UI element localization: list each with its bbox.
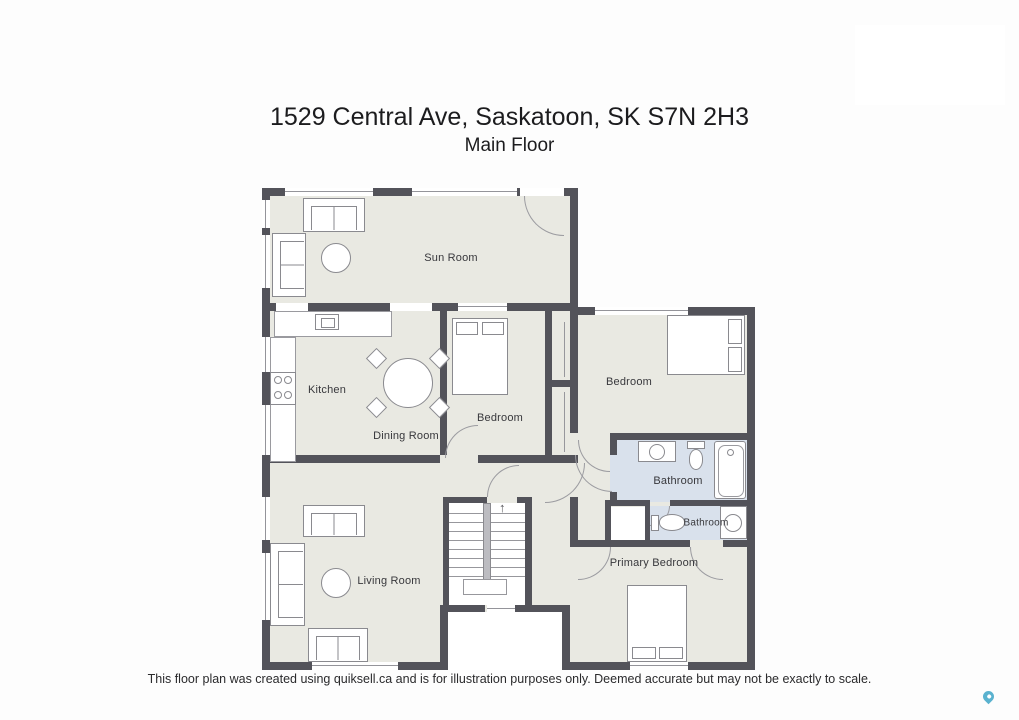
watermark-box	[855, 25, 1005, 105]
wall-vestibule-left	[440, 605, 448, 670]
window-living-bottom	[312, 662, 398, 670]
sofa-icon	[270, 543, 305, 626]
floor-closet	[611, 507, 645, 540]
window-kitchen-left-1	[262, 337, 270, 372]
wall-vestibule-right	[562, 605, 570, 662]
sink-basin	[649, 444, 665, 460]
wall-bedroom-middle-bottom	[478, 455, 578, 463]
window-kitchen-left-2	[262, 405, 270, 455]
wall-right-outer	[747, 307, 755, 670]
loveseat-icon	[308, 628, 368, 662]
toilet-icon	[689, 449, 703, 470]
opening-sunroom-dining	[390, 303, 432, 311]
room-label-bathroom-main: Bathroom	[653, 475, 702, 487]
sofa-icon	[303, 198, 365, 232]
room-label-sun-room: Sun Room	[424, 252, 478, 264]
page-subtitle: Main Floor	[0, 135, 1019, 157]
pillow	[659, 647, 683, 659]
bed-icon	[627, 585, 687, 662]
wall-bedroom-closet	[545, 311, 552, 455]
kitchen-sink-icon	[315, 314, 339, 330]
wall-bedroom-right-bottom	[610, 433, 755, 440]
pillow	[632, 647, 656, 659]
room-label-living-room: Living Room	[357, 575, 420, 587]
room-label-dining-room: Dining Room	[373, 430, 439, 442]
floor-entry-vestibule	[448, 612, 562, 670]
window-living-left-2	[262, 553, 270, 620]
room-label-kitchen: Kitchen	[308, 384, 346, 396]
window-bedroom-middle-top	[458, 303, 507, 311]
wall-sunroom-right	[570, 188, 578, 433]
window-primary-bottom	[630, 662, 688, 670]
room-label-primary-bedroom: Primary Bedroom	[610, 557, 699, 569]
bathroom-vanity-icon	[638, 441, 676, 462]
window-sunroom-left-1	[262, 200, 270, 228]
toilet-tank	[651, 515, 659, 531]
toilet-tank	[687, 441, 705, 449]
burner	[284, 391, 292, 399]
pillow	[482, 322, 504, 335]
sofa-seat	[311, 206, 357, 230]
wall-dining-bedroom	[440, 311, 447, 455]
pillow	[728, 319, 742, 344]
dining-table-icon	[383, 358, 433, 408]
sofa-seat	[280, 241, 304, 289]
bathtub-icon	[714, 441, 746, 499]
closet-rod-lower	[564, 392, 565, 452]
wall-corridor-right	[570, 497, 578, 547]
window-bedroom-right-top	[595, 307, 688, 315]
tub-drain	[727, 449, 734, 456]
wall-stairs-right	[525, 497, 532, 605]
staircase: ↑	[449, 503, 525, 605]
stairs-up-arrow-icon: ↑	[499, 500, 506, 515]
wall-primary-top-left	[570, 540, 690, 547]
round-table-icon	[321, 243, 351, 273]
burner	[284, 376, 292, 384]
window-sunroom-top-2	[412, 188, 517, 196]
stair-landing	[463, 579, 507, 595]
closet-rod-upper	[564, 322, 565, 377]
stove-icon	[270, 372, 296, 405]
wall-stairs-bottom-left	[443, 605, 485, 612]
wall-bathroom-left-lower	[610, 492, 617, 506]
pillow	[456, 322, 478, 335]
burner	[274, 391, 282, 399]
coffee-table-icon	[321, 568, 351, 598]
map-pin-icon[interactable]	[981, 689, 997, 705]
window-sunroom-top-1	[285, 188, 373, 196]
opening-sunroom-door	[520, 188, 564, 196]
sofa-icon	[272, 233, 306, 297]
window-sunroom-left-2	[262, 235, 270, 288]
wall-closet-left	[605, 500, 611, 547]
opening-sunroom-kitchen	[276, 303, 308, 311]
sofa-seat	[278, 551, 303, 618]
pillow	[728, 347, 742, 372]
room-label-bathroom-half: Bathroom	[684, 518, 729, 529]
bed-icon	[667, 315, 745, 375]
bed-icon	[452, 318, 508, 395]
sofa-icon	[303, 505, 365, 537]
disclaimer-text: This floor plan was created using quikse…	[0, 672, 1019, 686]
sink-basin	[321, 318, 335, 328]
window-living-left-1	[262, 497, 270, 540]
wall-bathroom-left-upper	[610, 433, 617, 455]
room-label-bedroom-right: Bedroom	[606, 376, 652, 388]
toilet-icon	[659, 514, 685, 531]
sofa-seat	[311, 513, 357, 535]
stair-rail	[483, 503, 491, 581]
room-label-bedroom-middle: Bedroom	[477, 412, 523, 424]
burner	[274, 376, 282, 384]
threshold-entry-door	[487, 605, 515, 612]
sofa-seat	[316, 636, 360, 660]
page-title: 1529 Central Ave, Saskatoon, SK S7N 2H3	[0, 103, 1019, 132]
